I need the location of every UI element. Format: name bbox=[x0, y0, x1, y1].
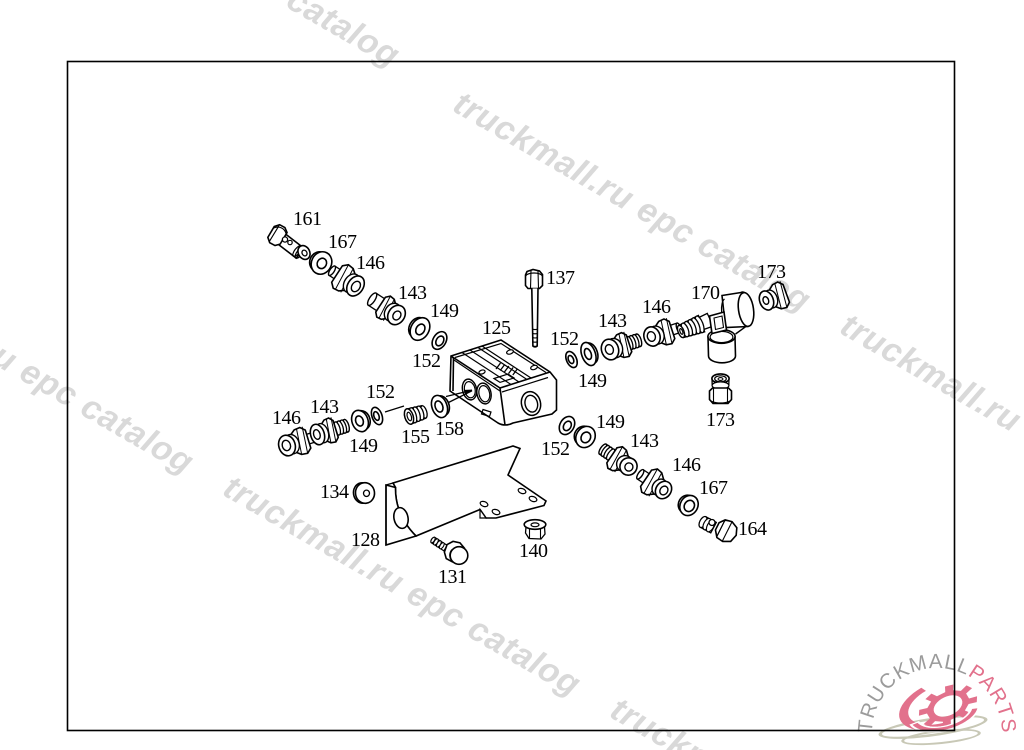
svg-text:146: 146 bbox=[672, 454, 701, 476]
svg-text:146: 146 bbox=[642, 296, 671, 318]
svg-text:149: 149 bbox=[578, 370, 607, 392]
svg-text:149: 149 bbox=[430, 300, 459, 322]
svg-text:143: 143 bbox=[310, 396, 339, 418]
svg-text:158: 158 bbox=[435, 418, 464, 440]
svg-text:143: 143 bbox=[630, 430, 659, 452]
svg-text:149: 149 bbox=[596, 411, 625, 433]
svg-text:152: 152 bbox=[412, 350, 441, 372]
svg-text:140: 140 bbox=[519, 540, 548, 562]
svg-text:131: 131 bbox=[438, 566, 467, 588]
svg-text:146: 146 bbox=[272, 407, 301, 429]
svg-text:137: 137 bbox=[546, 267, 575, 289]
svg-text:128: 128 bbox=[351, 529, 380, 551]
svg-text:173: 173 bbox=[706, 409, 735, 431]
svg-text:164: 164 bbox=[738, 518, 767, 540]
svg-text:125: 125 bbox=[482, 317, 511, 339]
svg-text:143: 143 bbox=[598, 310, 627, 332]
svg-text:152: 152 bbox=[541, 438, 570, 460]
svg-text:149: 149 bbox=[349, 435, 378, 457]
svg-text:155: 155 bbox=[401, 426, 430, 448]
svg-text:152: 152 bbox=[366, 381, 395, 403]
svg-text:152: 152 bbox=[550, 328, 579, 350]
svg-text:146: 146 bbox=[356, 252, 385, 274]
svg-text:167: 167 bbox=[328, 231, 357, 253]
svg-text:134: 134 bbox=[320, 481, 349, 503]
svg-text:143: 143 bbox=[398, 282, 427, 304]
svg-text:173: 173 bbox=[757, 261, 786, 283]
svg-text:170: 170 bbox=[691, 282, 720, 304]
svg-text:167: 167 bbox=[699, 477, 728, 499]
svg-text:161: 161 bbox=[293, 208, 322, 230]
